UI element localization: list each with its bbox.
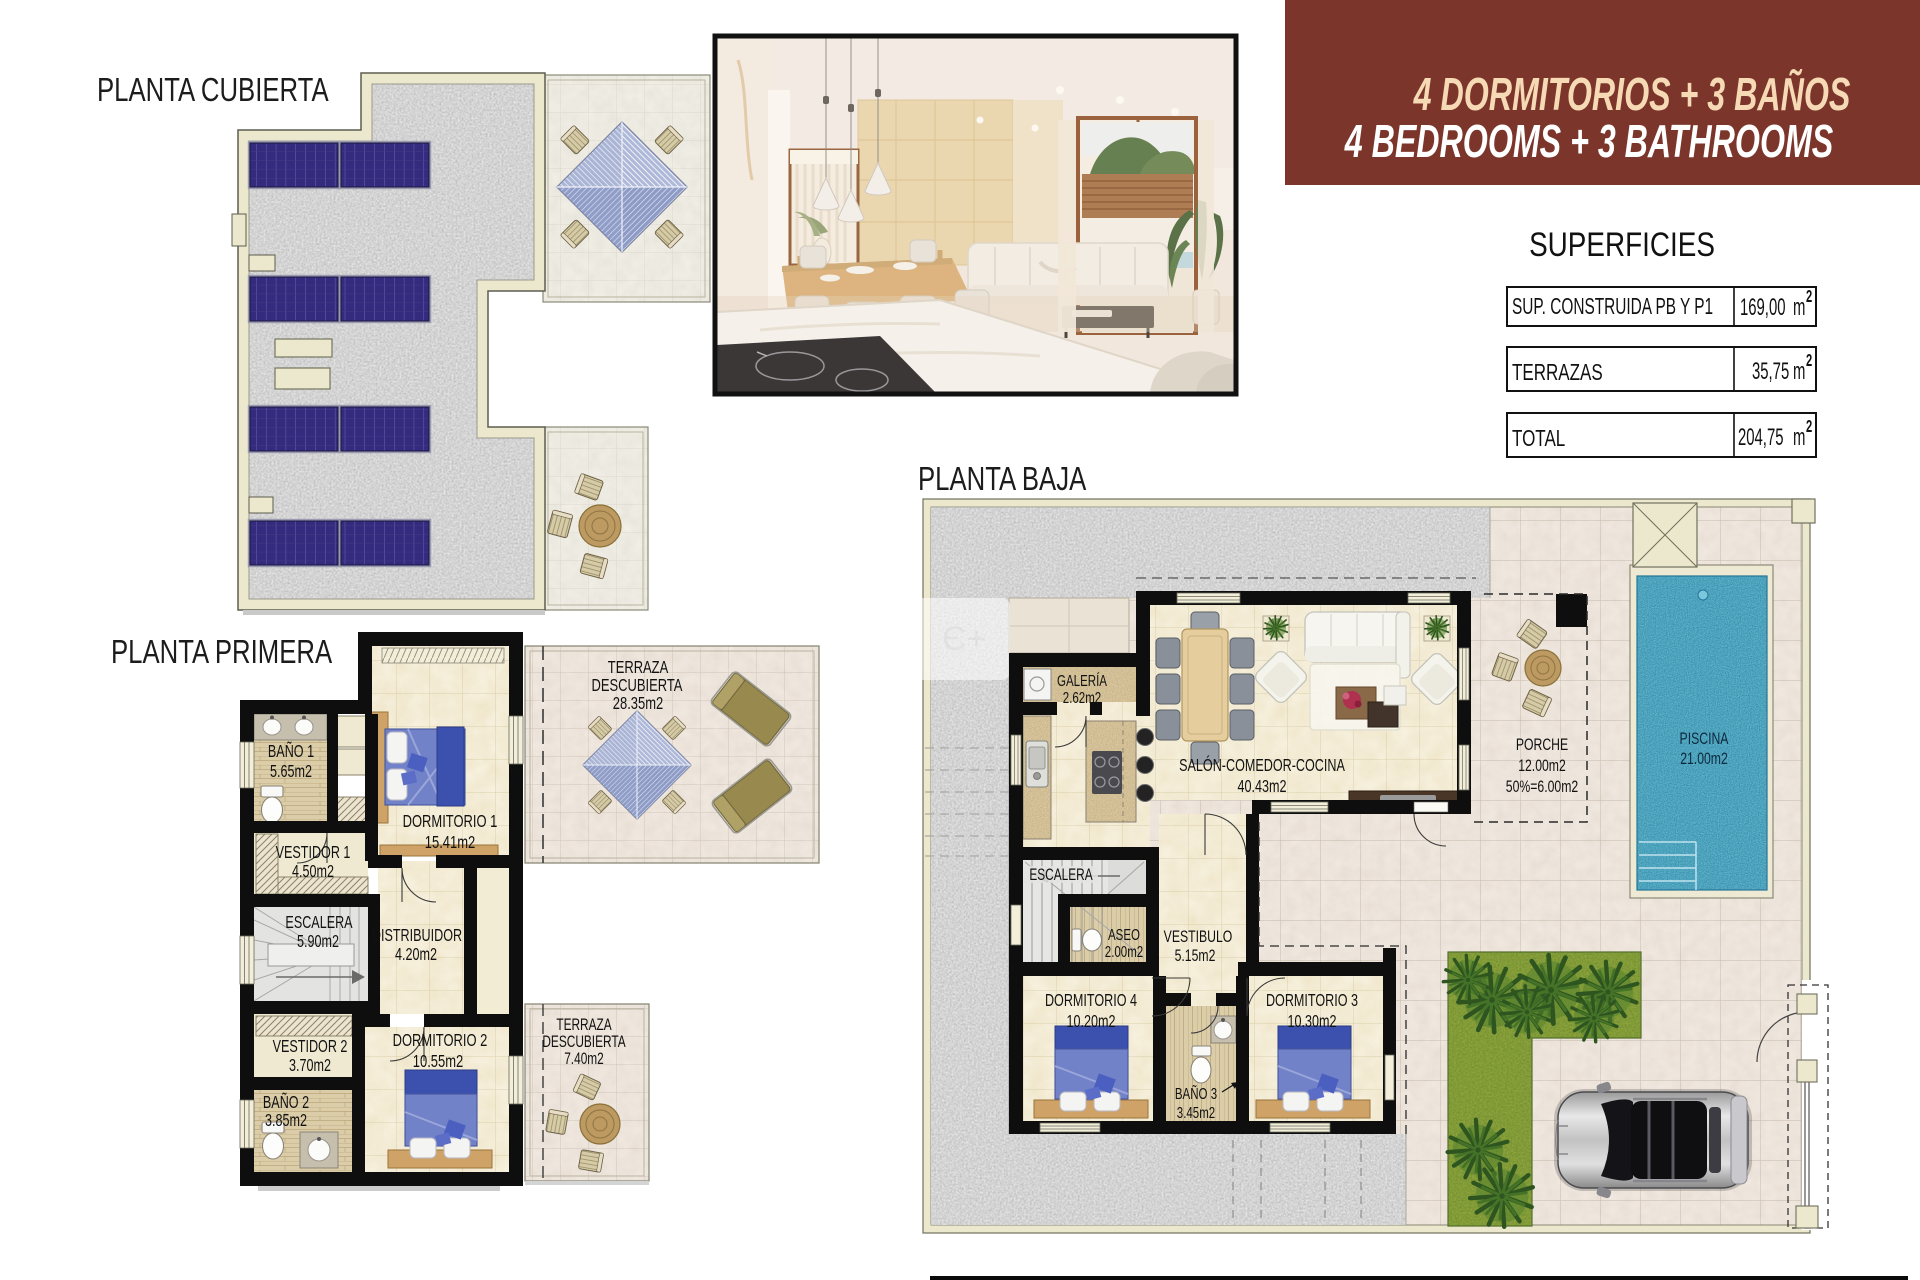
svg-text:BAÑO 1: BAÑO 1 <box>268 742 314 762</box>
svg-text:BAÑO 2: BAÑO 2 <box>263 1093 309 1113</box>
svg-text:DORMITORIO 4: DORMITORIO 4 <box>1045 991 1138 1011</box>
svg-text:2: 2 <box>1806 350 1812 370</box>
svg-text:SUP. CONSTRUIDA PB Y P1: SUP. CONSTRUIDA PB Y P1 <box>1512 294 1713 320</box>
svg-text:169,00: 169,00 <box>1740 295 1785 321</box>
svg-text:TERRAZA: TERRAZA <box>608 658 669 678</box>
svg-text:VESTIDOR 1: VESTIDOR 1 <box>276 843 351 863</box>
svg-text:DESCUBIERTA: DESCUBIERTA <box>592 676 683 696</box>
svg-text:3.70m2: 3.70m2 <box>289 1056 331 1076</box>
svg-text:35,75: 35,75 <box>1752 359 1789 385</box>
svg-text:DORMITORIO 2: DORMITORIO 2 <box>393 1031 488 1051</box>
svg-text:5.90m2: 5.90m2 <box>297 932 339 952</box>
svg-text:VESTIDOR 2: VESTIDOR 2 <box>273 1037 348 1057</box>
svg-text:VESTIBULO: VESTIBULO <box>1164 928 1233 946</box>
svg-text:12.00m2: 12.00m2 <box>1518 757 1566 775</box>
svg-text:PISCINA: PISCINA <box>1680 730 1729 748</box>
svg-text:2.62m2: 2.62m2 <box>1063 688 1102 706</box>
svg-text:PLANTA BAJA: PLANTA BAJA <box>918 461 1086 498</box>
svg-text:GALERÍA: GALERÍA <box>1057 671 1108 689</box>
svg-text:4 BEDROOMS + 3 BATHROOMS: 4 BEDROOMS + 3 BATHROOMS <box>1344 116 1834 167</box>
svg-text:SALÓN-COMEDOR-COCINA: SALÓN-COMEDOR-COCINA <box>1179 756 1345 776</box>
svg-text:10.30m2: 10.30m2 <box>1288 1012 1337 1032</box>
svg-text:4 DORMITORIOS + 3 BAÑOS: 4 DORMITORIOS + 3 BAÑOS <box>1413 69 1851 120</box>
svg-text:TERRAZA: TERRAZA <box>556 1016 612 1034</box>
svg-text:m: m <box>1793 425 1805 451</box>
svg-text:28.35m2: 28.35m2 <box>613 694 663 714</box>
svg-text:DORMITORIO 3: DORMITORIO 3 <box>1266 991 1358 1011</box>
svg-text:PLANTA CUBIERTA: PLANTA CUBIERTA <box>97 72 329 109</box>
svg-text:TERRAZAS: TERRAZAS <box>1512 361 1603 386</box>
svg-text:ASEO: ASEO <box>1108 925 1140 943</box>
svg-text:15.41m2: 15.41m2 <box>425 833 475 853</box>
svg-text:Є+: Є+ <box>942 620 986 658</box>
svg-text:BAÑO 3: BAÑO 3 <box>1175 1084 1217 1102</box>
svg-text:10.55m2: 10.55m2 <box>413 1052 463 1072</box>
svg-text:5.15m2: 5.15m2 <box>1175 947 1216 965</box>
svg-text:2.00m2: 2.00m2 <box>1105 942 1144 960</box>
svg-text:2: 2 <box>1806 286 1812 306</box>
svg-text:ESCALERA: ESCALERA <box>285 913 353 933</box>
svg-text:m: m <box>1793 295 1805 321</box>
svg-text:DESCUBIERTA: DESCUBIERTA <box>542 1033 626 1051</box>
svg-text:TOTAL: TOTAL <box>1512 427 1565 452</box>
svg-text:40.43m2: 40.43m2 <box>1238 777 1287 797</box>
svg-text:4.50m2: 4.50m2 <box>292 862 334 882</box>
svg-text:2: 2 <box>1806 416 1812 436</box>
svg-text:7.40m2: 7.40m2 <box>564 1050 604 1068</box>
svg-text:PORCHE: PORCHE <box>1516 736 1568 754</box>
svg-text:50%=6.00m2: 50%=6.00m2 <box>1506 778 1578 796</box>
svg-text:m: m <box>1793 359 1805 385</box>
svg-text:10.20m2: 10.20m2 <box>1067 1012 1116 1032</box>
svg-text:DORMITORIO 1: DORMITORIO 1 <box>403 812 498 832</box>
svg-text:204,75: 204,75 <box>1738 425 1783 451</box>
svg-text:ESCALERA: ESCALERA <box>1029 866 1093 884</box>
svg-text:4.20m2: 4.20m2 <box>395 945 437 965</box>
svg-text:DISTRIBUIDOR: DISTRIBUIDOR <box>372 926 462 946</box>
svg-text:21.00m2: 21.00m2 <box>1680 750 1728 768</box>
svg-text:3.45m2: 3.45m2 <box>1177 1103 1216 1121</box>
svg-text:5.65m2: 5.65m2 <box>270 762 312 782</box>
svg-text:SUPERFICIES: SUPERFICIES <box>1529 225 1715 263</box>
svg-text:PLANTA PRIMERA: PLANTA PRIMERA <box>111 634 332 671</box>
svg-text:3.85m2: 3.85m2 <box>265 1111 307 1131</box>
